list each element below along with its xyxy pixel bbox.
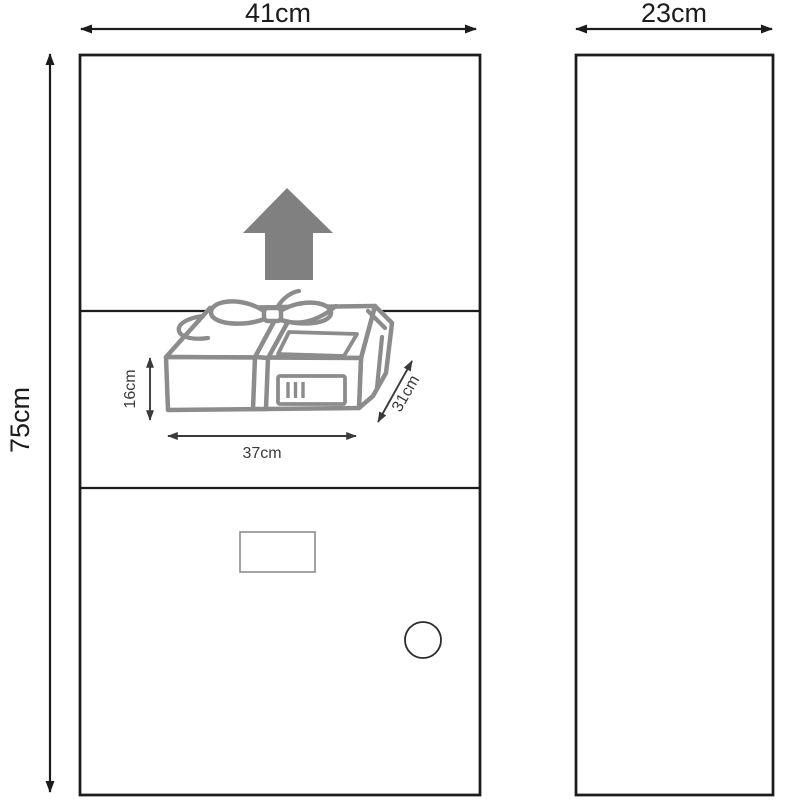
name-plate [240, 532, 315, 572]
parcel-icon [166, 291, 392, 410]
lock-knob [405, 622, 441, 658]
dimension-diagram: 41cm 23cm 75cm [0, 0, 800, 800]
parcel-twine-band-front [253, 357, 268, 409]
side-depth-label: 23cm [641, 0, 707, 28]
front-width-label: 41cm [245, 0, 311, 28]
front-view-outline [80, 55, 480, 795]
parcel-address-label [278, 332, 357, 356]
parcel-height-label: 16cm [122, 369, 139, 408]
side-view-outline [576, 55, 773, 795]
front-view: 16cm 37cm 31cm [80, 55, 480, 795]
parcel-bow-knot [264, 308, 281, 321]
insert-up-arrow-icon [243, 188, 333, 280]
dimension-diagram-canvas: 41cm 23cm 75cm [0, 0, 800, 800]
side-view [576, 55, 773, 795]
parcel-width-label: 37cm [242, 445, 281, 462]
height-label: 75cm [5, 387, 35, 453]
parcel-bow-left-loop [211, 301, 268, 323]
